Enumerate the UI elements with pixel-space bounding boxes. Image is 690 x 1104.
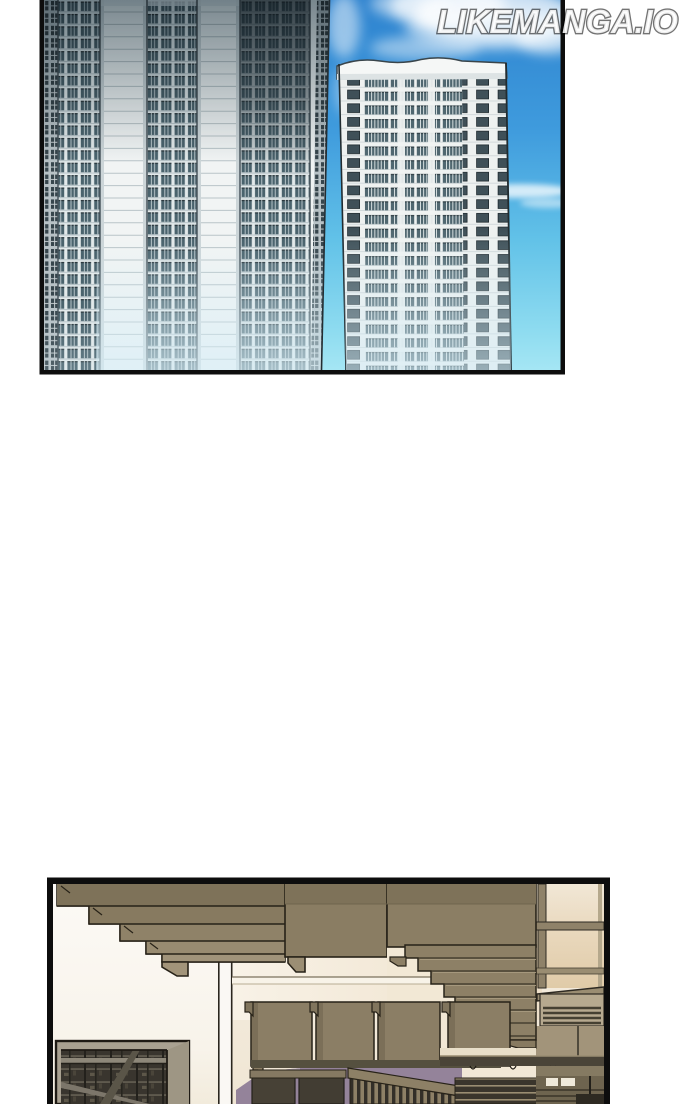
svg-text:LIKEMANGA.IO: LIKEMANGA.IO — [437, 3, 678, 40]
